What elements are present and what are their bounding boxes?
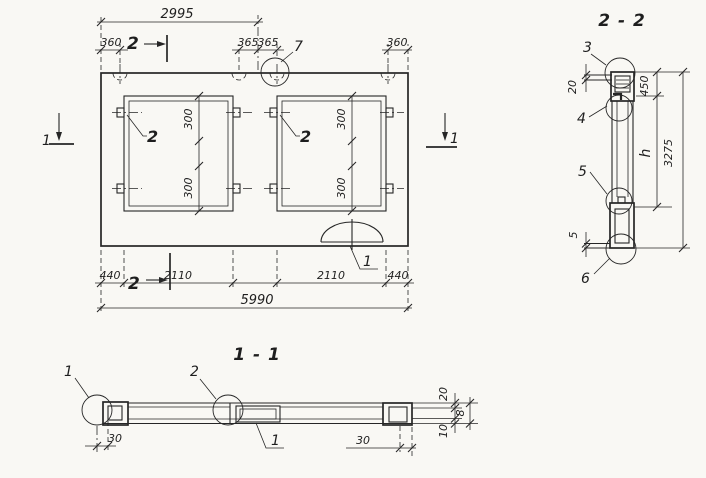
dim-2110-left: 2110	[164, 269, 192, 282]
dim-30-right: 30	[356, 434, 370, 447]
web	[612, 101, 633, 203]
dim-8: 8	[454, 410, 467, 417]
dim-360-right: 360	[387, 36, 408, 49]
dim-300-right-top: 300	[335, 109, 348, 130]
dim-bottom-row: 440 2110 2110 440	[95, 269, 414, 287]
callout-circle-7	[261, 58, 289, 86]
opening-dims: 300 300 300 300	[182, 92, 356, 215]
dim-5990-text: 5990	[240, 293, 273, 308]
dim-10: 10	[437, 424, 450, 438]
dim-440-right: 440	[388, 269, 409, 282]
dim-360-left: 360	[101, 36, 122, 49]
dim-h: h	[638, 149, 654, 158]
section-marker-1-right: 1	[426, 113, 459, 147]
sleeve-bottom	[610, 197, 634, 248]
marker-2-bottom-label: 2	[128, 274, 141, 294]
panel-outline	[101, 73, 408, 246]
dim-440-left: 440	[100, 269, 121, 282]
dim-300-left-top: 300	[182, 109, 195, 130]
dim-365-left: 365	[238, 36, 259, 49]
callout-6-label: 6	[581, 271, 590, 287]
section-marker-1-left: 1	[42, 113, 74, 149]
dim-450: 450	[638, 76, 651, 97]
dim-300-left-bottom: 300	[182, 178, 195, 199]
callout-5-label: 5	[578, 164, 587, 180]
callout-1-left-label: 1	[64, 364, 73, 380]
dim-2995: 2995	[97, 7, 263, 26]
dim-2995-text: 2995	[160, 7, 193, 22]
section-marker-2-top: 2	[127, 34, 167, 62]
marker-1-right-label: 1	[450, 131, 459, 147]
callout-2-label: 2	[190, 364, 199, 380]
cutout-label: 1	[363, 254, 372, 270]
dim-3275: 3275	[662, 139, 675, 167]
anchor-leader-left	[127, 115, 147, 136]
anchor-right-label: 2	[300, 127, 311, 146]
section-1-1-body	[103, 402, 412, 425]
dim-top-row: 360 365 365 360	[95, 36, 412, 54]
dim-20-s11: 20	[437, 387, 450, 401]
callout-1-core-label: 1	[271, 433, 280, 449]
drawing-sheet: 7 1 2 2 300 300 300 300	[0, 0, 706, 478]
callout-7-label: 7	[294, 39, 303, 55]
plan-view: 7 1 2 2 300 300 300 300	[42, 7, 459, 312]
marker-1-left-label: 1	[42, 133, 51, 149]
marker-2-top-label: 2	[127, 34, 140, 54]
anchor-leader-right	[280, 115, 300, 136]
dim-30-left: 30	[108, 432, 122, 445]
dim-5: 5	[567, 232, 580, 239]
callout-3-label: 3	[583, 40, 592, 56]
section-1-1-title: 1 - 1	[233, 345, 281, 365]
panel-drawing: 7 1 2 2 300 300 300 300	[0, 0, 706, 478]
dim-5990: 5990	[97, 293, 412, 312]
dim-365-right: 365	[258, 36, 279, 49]
dim-20-s22: 20	[566, 80, 579, 94]
opening-right	[264, 96, 404, 211]
anchor-left-label: 2	[147, 127, 158, 146]
section-1-1-dims: 30 30 20 8 10	[85, 387, 478, 456]
callout-4-label: 4	[577, 111, 586, 127]
section-2-2: 2 - 2	[566, 11, 690, 287]
section-1-1: 1 - 1 1 2 1	[64, 345, 478, 456]
dim-2110-right: 2110	[317, 269, 345, 282]
dim-300-right-bottom: 300	[335, 178, 348, 199]
section-2-2-title: 2 - 2	[598, 11, 646, 31]
lifting-loops	[113, 64, 395, 84]
